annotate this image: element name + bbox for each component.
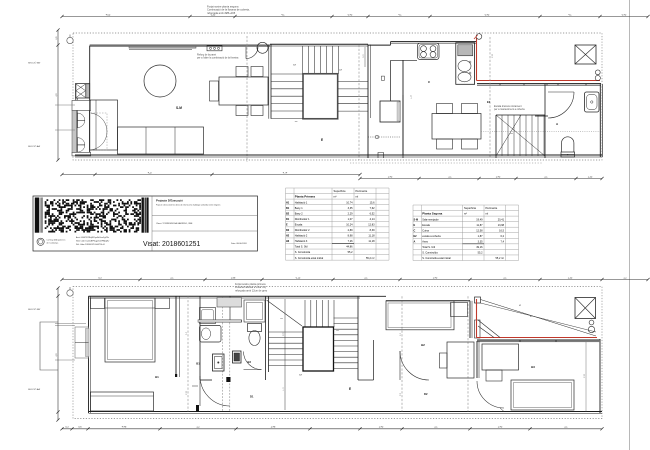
svg-text:3,35: 3,35 <box>348 207 353 210</box>
svg-text:2Ø: 2Ø <box>339 70 342 72</box>
svg-text:S-M: S-M <box>414 218 419 221</box>
svg-text:H2: H2 <box>421 343 425 347</box>
svg-text:de Catalunya: de Catalunya <box>47 242 60 245</box>
svg-text:Client: TORRESROSA GARRIDO,: Client: TORRESROSA GARRIDO, VBE <box>156 222 193 225</box>
svg-text:1,98: 1,98 <box>231 277 236 279</box>
svg-text:44,86: 44,86 <box>346 246 353 249</box>
svg-text:0,45: 0,45 <box>348 14 353 16</box>
svg-text:Superfície: Superfície <box>334 189 347 193</box>
svg-text:12,83: 12,83 <box>368 223 375 226</box>
svg-text:55,2: 55,2 <box>478 252 483 255</box>
svg-text:1,45: 1,45 <box>498 427 503 429</box>
svg-text:H1: H1 <box>155 375 159 379</box>
svg-text:15,6: 15,6 <box>370 201 375 204</box>
svg-text:S-M: S-M <box>176 106 182 110</box>
svg-text:B1: B1 <box>196 362 200 366</box>
svg-text:ml: ml <box>486 213 489 216</box>
svg-text:2,29: 2,29 <box>348 212 353 215</box>
svg-text:SECCIÓ BB': SECCIÓ BB' <box>28 308 41 311</box>
svg-text:0,25: 0,25 <box>211 14 216 16</box>
svg-text:S. Construïda: S. Construïda <box>422 252 438 255</box>
svg-text:Superfície: Superfície <box>464 206 477 210</box>
svg-text:7,26: 7,26 <box>348 240 353 243</box>
svg-text:10,74: 10,74 <box>346 201 353 204</box>
svg-text:5Ø: 5Ø <box>510 133 513 135</box>
svg-text:H3: H3 <box>531 365 535 369</box>
svg-text:12,58: 12,58 <box>476 229 483 232</box>
svg-text:0,45: 0,45 <box>622 14 627 16</box>
svg-text:Perímetre: Perímetre <box>486 206 498 210</box>
svg-text:Asst: 04467X/ZRqW/OpzBzXuwXgZ/: Asst: 04467X/ZRqW/OpzBzXuwXgZ/Fz <box>76 236 109 239</box>
svg-text:3,35: 3,35 <box>478 240 483 243</box>
svg-text:Data: 08-06-2018: Data: 08-06-2018 <box>231 242 247 245</box>
svg-text:Total S. Útil: Total S. Útil <box>422 246 435 249</box>
svg-text:1,35: 1,35 <box>588 176 593 178</box>
svg-text:SECCIÓ AA': SECCIÓ AA' <box>28 145 41 148</box>
svg-text:Habitació 2: Habitació 2 <box>295 235 308 238</box>
svg-text:Habitació 3: Habitació 3 <box>295 240 308 243</box>
svg-text:3Ø: 3Ø <box>299 375 302 377</box>
svg-text:SECCIÓ BB': SECCIÓ BB' <box>28 62 41 65</box>
svg-text:6,2: 6,2 <box>501 235 505 238</box>
svg-text:Perímetre: Perímetre <box>356 189 368 193</box>
svg-text:55,2 m²: 55,2 m² <box>366 257 375 260</box>
svg-text:4,27: 4,27 <box>148 172 153 174</box>
svg-text:Cuina: Cuina <box>422 229 429 232</box>
svg-text:0,45: 0,45 <box>485 14 490 16</box>
svg-text:1,45: 1,45 <box>433 277 438 279</box>
svg-text:10,24: 10,24 <box>346 223 353 226</box>
svg-text:4,05: 4,05 <box>106 14 111 16</box>
svg-text:1,45: 1,45 <box>388 176 393 178</box>
svg-text:3Ø: 3Ø <box>295 121 298 123</box>
svg-text:Ref: Urbm 2018601251-b87/10.d1: Ref: Urbm 2018601251-b87/10.d1 <box>76 243 105 246</box>
svg-text:Col·legi d'Arquitectes: Col·legi d'Arquitectes <box>47 239 66 242</box>
svg-text:Bany 1: Bany 1 <box>295 207 303 210</box>
svg-text:⌀: ⌀ <box>519 303 521 307</box>
svg-text:Planta Segona: Planta Segona <box>422 212 442 216</box>
svg-text:reforçada amb 12cm de gero: reforçada amb 12cm de gero <box>235 289 268 292</box>
svg-text:7,4: 7,4 <box>501 240 505 243</box>
svg-text:⌀: ⌀ <box>530 314 532 318</box>
svg-text:A: A <box>414 240 416 243</box>
svg-text:m²: m² <box>464 213 467 216</box>
svg-text:2,48: 2,48 <box>271 427 276 429</box>
svg-text:2,89: 2,89 <box>348 229 353 232</box>
svg-text:11,18: 11,18 <box>368 240 375 243</box>
svg-text:S. Construïda estat inicial: S. Construïda estat inicial <box>422 257 451 260</box>
svg-text:19,49: 19,49 <box>476 218 483 221</box>
svg-text:Sala-menjador: Sala-menjador <box>422 218 438 221</box>
svg-text:Total S. Útil: Total S. Útil <box>295 246 308 249</box>
svg-text:Projecte i direcció de les obr: Projecte i direcció de les obres de refo… <box>156 203 220 206</box>
svg-text:D1: D1 <box>250 395 254 399</box>
svg-text:6,52: 6,52 <box>370 212 375 215</box>
svg-text:D2: D2 <box>424 392 428 396</box>
svg-text:escala a coberta: escala a coberta <box>422 235 441 238</box>
svg-text:Núm Códi: Da22xBfPfcgpeUDrF8fj: Núm Códi: Da22xBfPfcgpeUDrF8fjQjKv <box>76 240 109 243</box>
svg-text:Visat: 2018601251: Visat: 2018601251 <box>143 241 201 248</box>
svg-text:49,16: 49,16 <box>476 246 483 249</box>
svg-text:11,18: 11,18 <box>368 235 375 238</box>
svg-text:13,98: 13,98 <box>498 224 505 227</box>
svg-text:0,15: 0,15 <box>296 277 301 279</box>
svg-text:4,14: 4,14 <box>370 218 375 221</box>
svg-text:4,48: 4,48 <box>122 427 127 429</box>
svg-text:7,62: 7,62 <box>370 207 375 210</box>
svg-text:E2: E2 <box>487 100 491 104</box>
svg-text:55,2 m²: 55,2 m² <box>496 257 505 260</box>
svg-text:Projecte D'Execució: Projecte D'Execució <box>156 199 183 203</box>
svg-text:S. Construïda estat inicial: S. Construïda estat inicial <box>295 257 324 260</box>
svg-text:SECCIÓ AA': SECCIÓ AA' <box>28 388 41 391</box>
svg-text:Distribuidor 2: Distribuidor 2 <box>295 229 310 232</box>
svg-text:1,35: 1,35 <box>568 277 573 279</box>
svg-text:16,5: 16,5 <box>499 229 504 232</box>
svg-text:E: E <box>349 387 351 391</box>
svg-text:m²: m² <box>334 196 337 199</box>
svg-text:Bany 2: Bany 2 <box>295 212 303 215</box>
svg-text:Escala: Escala <box>295 223 303 226</box>
svg-text:8,39: 8,39 <box>370 229 375 232</box>
svg-text:20,41: 20,41 <box>498 218 505 221</box>
svg-text:Escala: Escala <box>422 224 430 227</box>
svg-text:1,07: 1,07 <box>348 218 353 221</box>
svg-text:S. Construïda: S. Construïda <box>295 251 311 254</box>
svg-text:Distribuidor 1: Distribuidor 1 <box>295 218 310 221</box>
svg-text:Aseo: Aseo <box>422 240 428 243</box>
svg-text:C: C <box>414 229 416 232</box>
svg-text:4,74: 4,74 <box>283 172 288 174</box>
svg-text:per a l'altre la combinació de: per a l'altre la combinació de la finest… <box>197 57 239 60</box>
svg-text:3Ø: 3Ø <box>293 65 296 67</box>
svg-text:1,45: 1,45 <box>379 427 384 429</box>
svg-text:per a manteniment a coberta: per a manteniment a coberta <box>494 108 525 111</box>
svg-text:2Ø: 2Ø <box>336 330 339 332</box>
svg-text:ml: ml <box>356 196 359 199</box>
svg-text:Habitació 1: Habitació 1 <box>295 201 308 204</box>
svg-text:1Ø: 1Ø <box>280 318 283 320</box>
svg-text:55,2: 55,2 <box>348 251 353 254</box>
svg-text:8,98: 8,98 <box>348 235 353 238</box>
svg-text:Planta Primera: Planta Primera <box>295 195 316 199</box>
svg-text:11,87: 11,87 <box>476 224 483 227</box>
svg-text:1,87: 1,87 <box>478 235 483 238</box>
svg-text:E: E <box>321 138 323 142</box>
svg-text:1,45: 1,45 <box>496 176 501 178</box>
